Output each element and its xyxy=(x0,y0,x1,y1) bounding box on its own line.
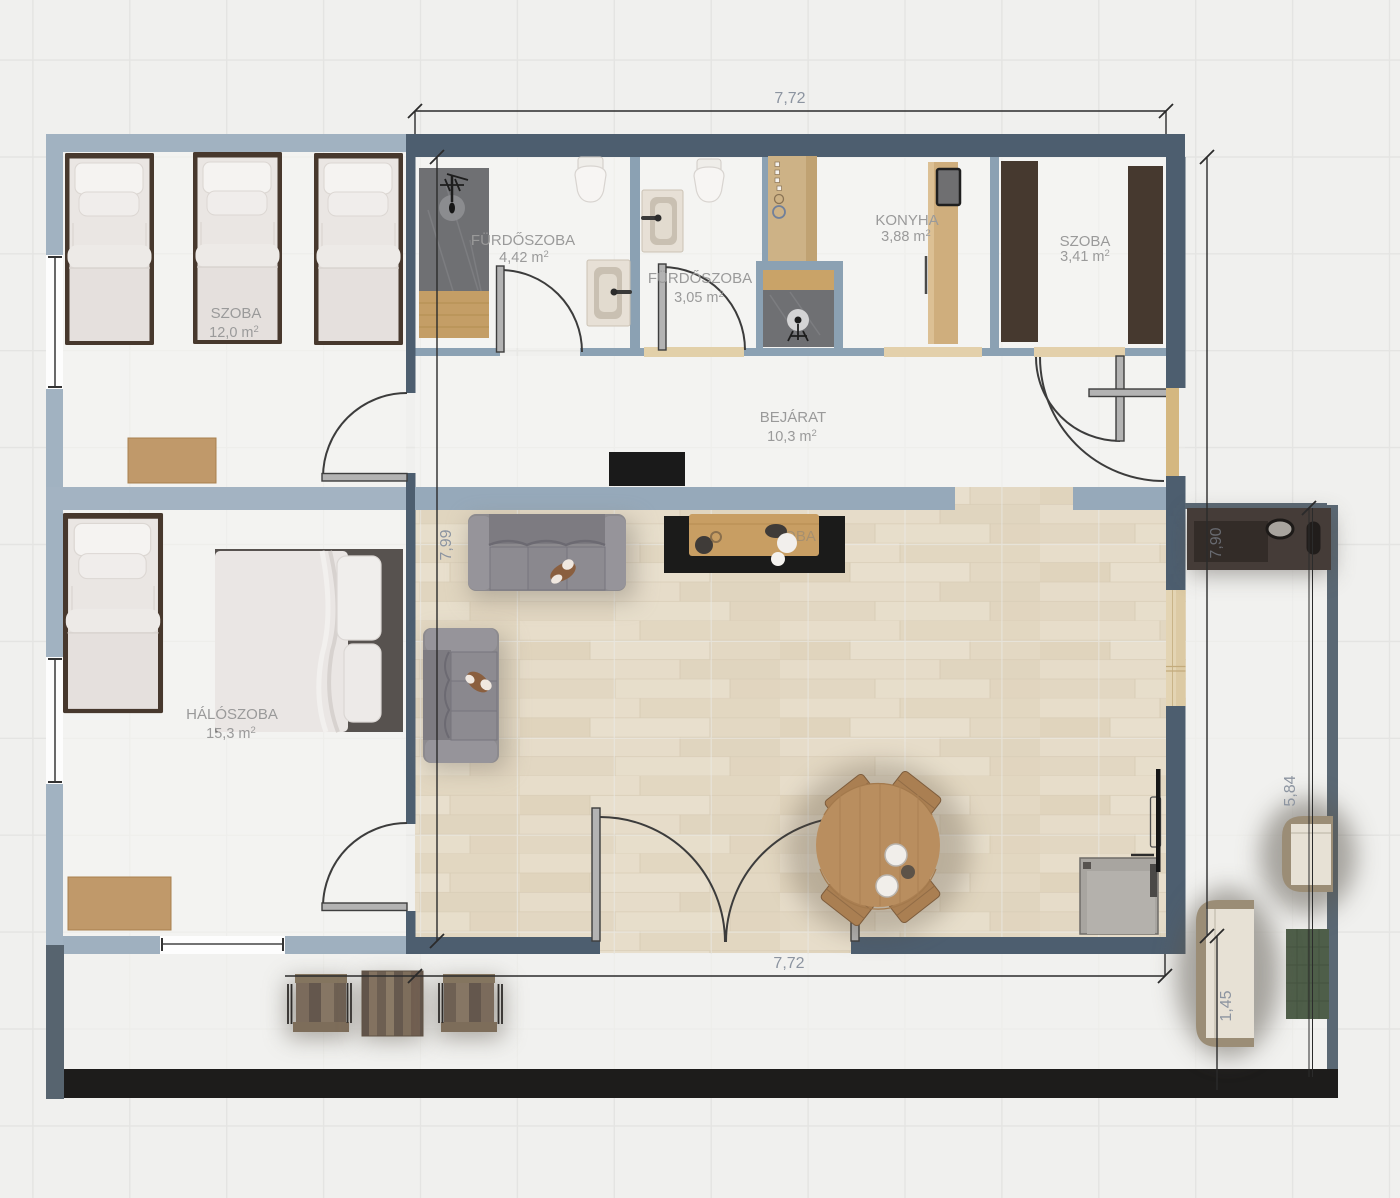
svg-text:3,05 m2: 3,05 m2 xyxy=(674,289,724,306)
svg-text:3,41 m2: 3,41 m2 xyxy=(1060,248,1110,265)
svg-text:7,90: 7,90 xyxy=(1208,527,1225,558)
svg-text:12,0 m2: 12,0 m2 xyxy=(209,324,259,341)
svg-text:5,84: 5,84 xyxy=(1282,775,1299,806)
svg-text:BEJÁRAT: BEJÁRAT xyxy=(760,409,826,426)
svg-text:7,72: 7,72 xyxy=(774,90,805,107)
svg-text:SZOBA: SZOBA xyxy=(211,305,262,322)
svg-text:3,88 m2: 3,88 m2 xyxy=(881,228,931,245)
svg-text:SZOBA: SZOBA xyxy=(1060,233,1111,250)
svg-text:1,45: 1,45 xyxy=(1218,990,1235,1021)
svg-text:KONYHA: KONYHA xyxy=(875,212,938,229)
svg-text:HÁLÓSZOBA: HÁLÓSZOBA xyxy=(186,706,278,723)
svg-text:4,42 m2: 4,42 m2 xyxy=(499,249,549,266)
svg-text:FÜRDŐSZOBA: FÜRDŐSZOBA xyxy=(648,269,752,287)
svg-text:7,99: 7,99 xyxy=(438,529,455,560)
svg-text:10,3 m2: 10,3 m2 xyxy=(767,428,817,445)
svg-text:FÜRDŐSZOBA: FÜRDŐSZOBA xyxy=(471,231,575,249)
svg-text:7,72: 7,72 xyxy=(773,955,804,972)
svg-text:15,3 m2: 15,3 m2 xyxy=(206,725,256,742)
